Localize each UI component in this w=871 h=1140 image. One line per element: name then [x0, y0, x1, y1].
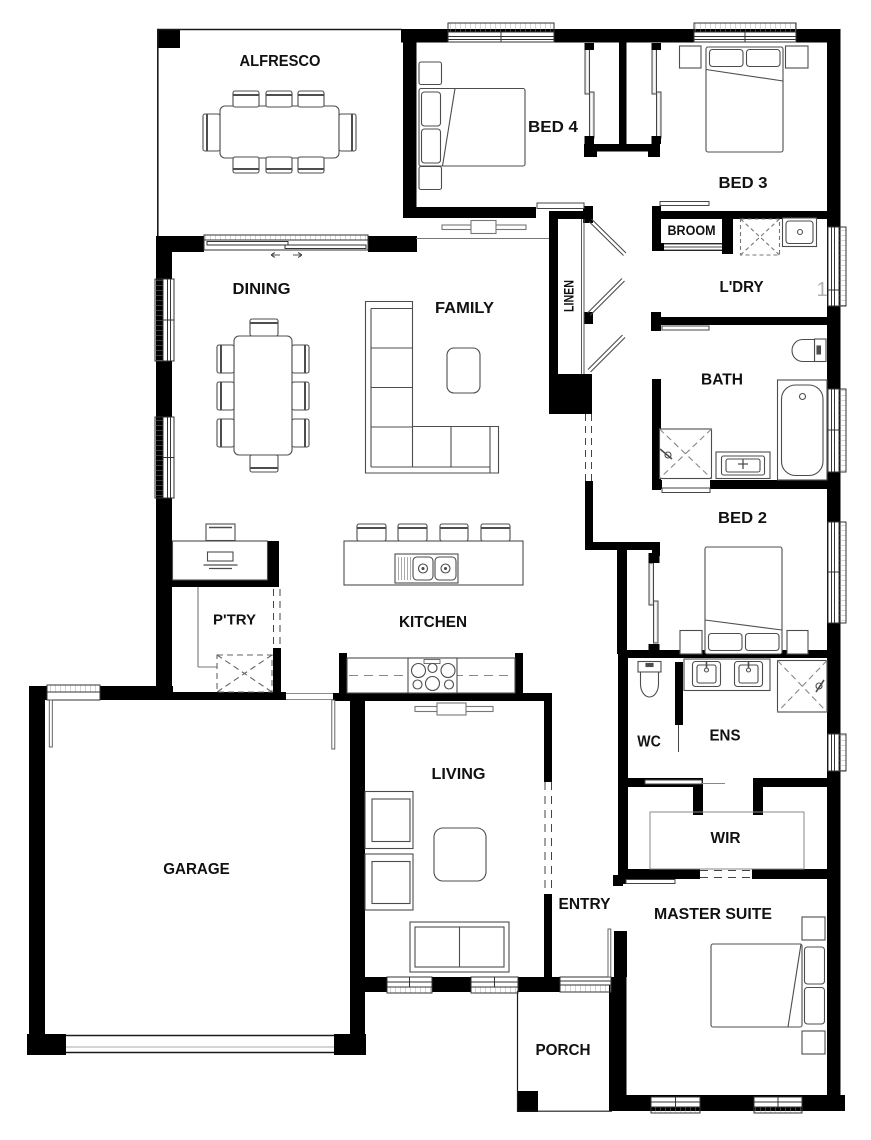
svg-text:1: 1 [816, 279, 827, 301]
svg-text:GARAGE: GARAGE [163, 861, 230, 878]
svg-text:LIVING: LIVING [432, 766, 486, 783]
svg-text:ENTRY: ENTRY [559, 896, 611, 913]
svg-text:BROOM: BROOM [668, 223, 716, 238]
svg-text:ALFRESCO: ALFRESCO [240, 53, 321, 70]
svg-text:FAMILY: FAMILY [435, 300, 494, 317]
svg-text:WIR: WIR [711, 830, 741, 847]
svg-text:P'TRY: P'TRY [213, 612, 256, 629]
svg-text:DINING: DINING [233, 281, 291, 298]
svg-text:KITCHEN: KITCHEN [399, 614, 467, 631]
svg-text:BED 2: BED 2 [718, 510, 767, 527]
svg-text:L'DRY: L'DRY [720, 279, 764, 296]
svg-text:BED 3: BED 3 [719, 175, 768, 192]
svg-text:BATH: BATH [701, 372, 743, 389]
svg-text:MASTER SUITE: MASTER SUITE [654, 906, 772, 923]
svg-text:PORCH: PORCH [536, 1042, 591, 1059]
svg-text:ENS: ENS [710, 728, 741, 745]
svg-text:LINEN: LINEN [562, 280, 577, 312]
svg-text:BED 4: BED 4 [528, 119, 578, 136]
svg-text:WC: WC [637, 734, 661, 751]
